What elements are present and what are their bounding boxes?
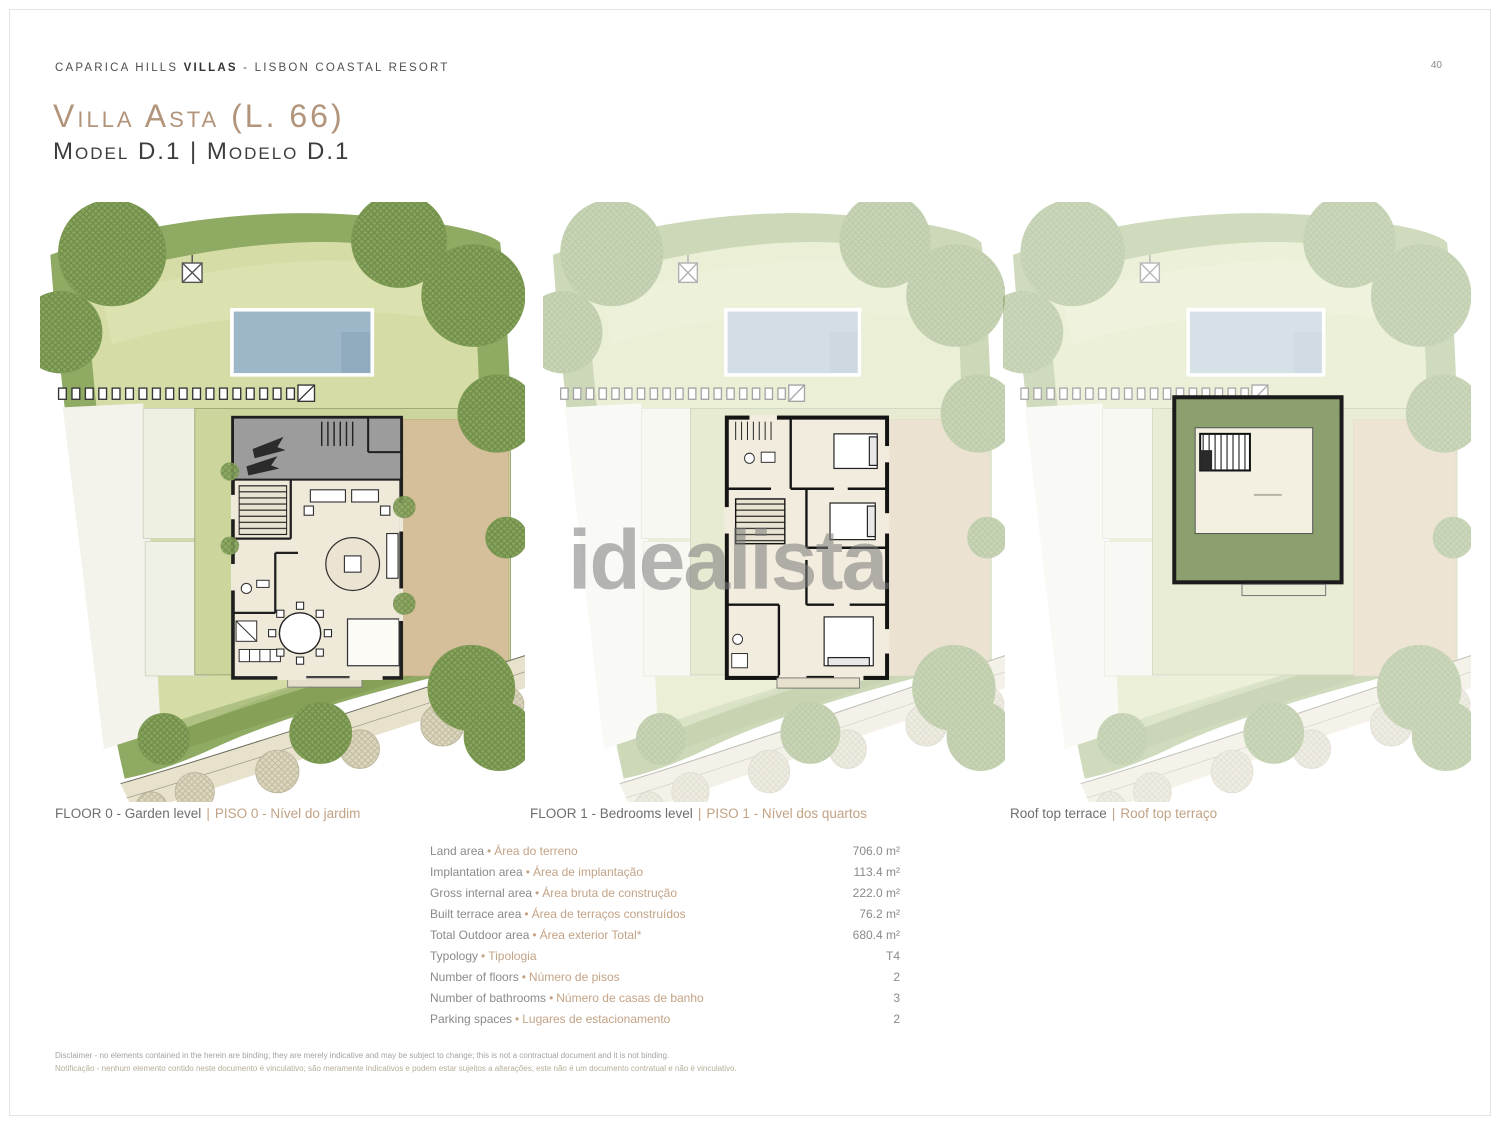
caption-pt: PISO 1 - Nível dos quartos [706,806,867,821]
spec-row-land-area: Land area•Área do terreno 706.0 m² [430,841,900,862]
page: CAPARICA HILLS VILLAS - LISBON COASTAL R… [0,0,1500,1125]
spec-bullet: • [487,844,491,858]
spec-label: Typology•Tipologia [430,946,537,967]
spec-value: 113.4 m² [854,862,900,883]
specs-table: Land area•Área do terreno 706.0 m² Impla… [430,841,900,1030]
spec-label: Land area•Área do terreno [430,841,578,862]
spec-row-gross-internal-area: Gross internal area•Área bruta de constr… [430,883,900,904]
floorplan-svg-floor1 [543,202,1005,802]
spec-row-number-of-floors: Number of floors•Número de pisos 2 [430,967,900,988]
spec-value: 706.0 m² [853,841,900,862]
spec-label: Total Outdoor area•Área exterior Total* [430,925,641,946]
caption-en: Roof top terrace [1010,806,1107,821]
disclaimer-line-en: Disclaimer - no elements contained in th… [55,1049,815,1062]
spec-label-en: Typology [430,949,478,963]
floorplan-figure-floor1 [543,202,1005,802]
spec-bullet: • [522,970,526,984]
page-number: 40 [1431,60,1442,71]
spec-label-en: Built terrace area [430,907,521,921]
spec-bullet: • [515,1012,519,1026]
plan-caption-floor0: FLOOR 0 - Garden level|PISO 0 - Nível do… [55,806,360,821]
spec-value: 3 [893,988,900,1009]
spec-label: Number of bathrooms•Número de casas de b… [430,988,704,1009]
spec-label: Implantation area•Área de implantação [430,862,643,883]
spec-label-pt: Número de casas de banho [556,991,703,1005]
spec-value: 680.4 m² [853,925,900,946]
spec-row-built-terrace-area: Built terrace area•Área de terraços cons… [430,904,900,925]
spec-label-en: Number of floors [430,970,519,984]
floorplan-svg-roof [1003,202,1471,802]
floorplan-figure-floor0 [40,202,525,802]
spec-label-pt: Área de implantação [533,865,643,879]
caption-en: FLOOR 0 - Garden level [55,806,201,821]
spec-label-en: Land area [430,844,484,858]
spec-label-en: Gross internal area [430,886,532,900]
spec-value: T4 [886,946,900,967]
caption-separator: | [206,806,210,821]
spec-value: 76.2 m² [859,904,900,925]
caption-separator: | [1112,806,1116,821]
spec-label-pt: Lugares de estacionamento [522,1012,670,1026]
caption-separator: | [698,806,702,821]
spec-label-pt: Tipologia [488,949,536,963]
spec-value: 222.0 m² [853,883,900,904]
plan-caption-roof: Roof top terrace|Roof top terraço [1010,806,1217,821]
spec-label: Number of floors•Número de pisos [430,967,620,988]
spec-value: 2 [893,967,900,988]
spec-bullet: • [532,928,536,942]
caption-pt: Roof top terraço [1120,806,1217,821]
caption-en: FLOOR 1 - Bedrooms level [530,806,693,821]
spec-label-en: Total Outdoor area [430,928,529,942]
spec-row-number-of-bathrooms: Number of bathrooms•Número de casas de b… [430,988,900,1009]
spec-bullet: • [549,991,553,1005]
floorplan-figure-roof [1003,202,1471,802]
model-subtitle: Model D.1 | Modelo D.1 [53,138,350,166]
spec-label-pt: Área do terreno [494,844,577,858]
disclaimer: Disclaimer - no elements contained in th… [55,1049,815,1075]
brand-prefix: CAPARICA HILLS [55,62,178,74]
idealista-watermark: idealista [568,512,886,609]
header-brand: CAPARICA HILLS VILLAS - LISBON COASTAL R… [55,62,450,74]
spec-label-pt: Área de terraços construídos [532,907,686,921]
spec-label-en: Parking spaces [430,1012,512,1026]
spec-row-implantation-area: Implantation area•Área de implantação 11… [430,862,900,883]
floorplan-svg-floor0 [40,202,525,802]
plan-caption-floor1: FLOOR 1 - Bedrooms level|PISO 1 - Nível … [530,806,867,821]
spec-value: 2 [893,1009,900,1030]
caption-pt: PISO 0 - Nível do jardim [215,806,361,821]
spec-bullet: • [526,865,530,879]
spec-label: Parking spaces•Lugares de estacionamento [430,1009,670,1030]
spec-row-total-outdoor-area: Total Outdoor area•Área exterior Total* … [430,925,900,946]
brand-suffix: LISBON COASTAL RESORT [255,62,450,74]
brand-bold: VILLAS [184,62,238,74]
brand-separator: - [243,62,249,74]
spec-label-pt: Área exterior Total* [540,928,642,942]
spec-row-parking-spaces: Parking spaces•Lugares de estacionamento… [430,1009,900,1030]
spec-label-en: Implantation area [430,865,523,879]
spec-label-pt: Área bruta de construção [542,886,677,900]
spec-row-typology: Typology•Tipologia T4 [430,946,900,967]
spec-label: Gross internal area•Área bruta de constr… [430,883,677,904]
spec-label: Built terrace area•Área de terraços cons… [430,904,686,925]
spec-label-pt: Número de pisos [529,970,620,984]
spec-bullet: • [535,886,539,900]
disclaimer-line-pt: Notificação - nenhum elemento contido ne… [55,1062,815,1075]
spec-bullet: • [524,907,528,921]
villa-title: Villa Asta (L. 66) [53,98,345,135]
spec-label-en: Number of bathrooms [430,991,546,1005]
spec-bullet: • [481,949,485,963]
